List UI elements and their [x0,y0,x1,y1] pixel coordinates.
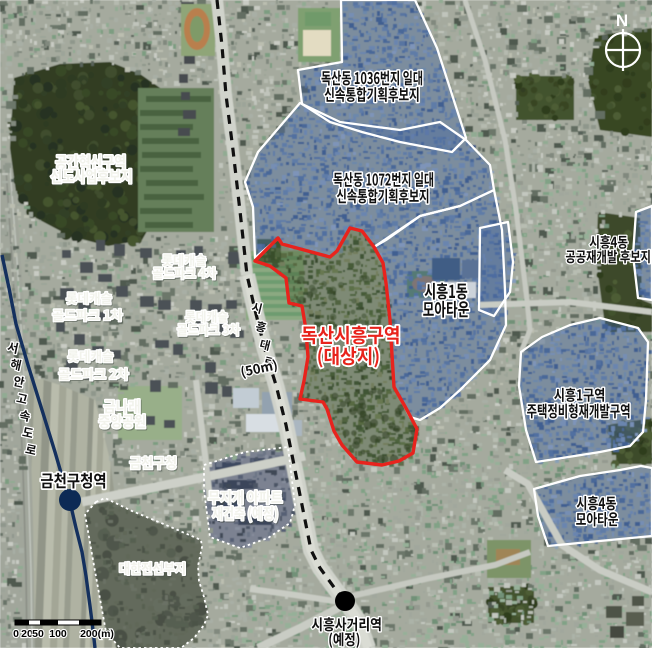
svg-text:50: 50 [32,628,44,640]
svg-text:0: 0 [13,628,19,640]
svg-text:200(m): 200(m) [80,628,114,640]
svg-text:N: N [616,11,628,30]
svg-text:100: 100 [49,628,67,640]
